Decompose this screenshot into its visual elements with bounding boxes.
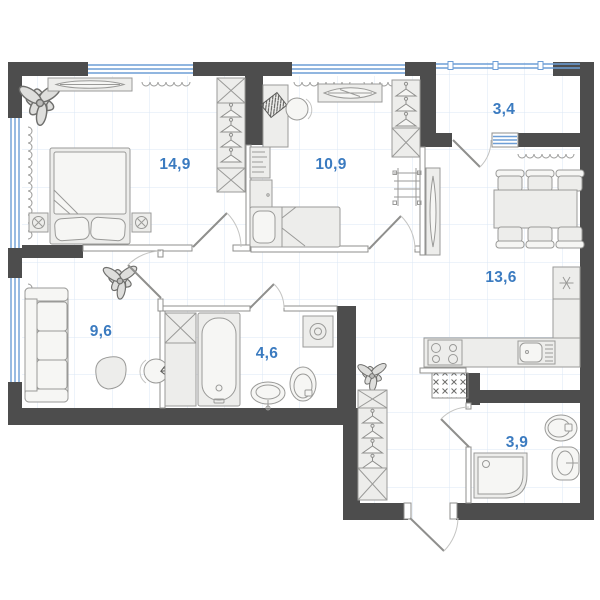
room-label-bedroom: 14,9: [159, 156, 190, 173]
kitchen-balcony-window: [492, 133, 518, 147]
floor-plan-drawing: 14,9: [0, 0, 600, 600]
washing-machine: [303, 316, 333, 347]
kids-cabinet: [250, 180, 272, 210]
decor-shelf: [318, 84, 382, 102]
dresser: [48, 78, 132, 91]
single-bed: [250, 207, 340, 247]
bath-cabinet: [165, 313, 196, 406]
bookshelf: [250, 147, 270, 178]
room-label-shower: 3,9: [506, 434, 529, 451]
room-label-kids: 10,9: [315, 156, 346, 173]
shower-tray: [474, 453, 527, 498]
nightstand-left: [29, 213, 48, 232]
room-label-living: 9,6: [90, 323, 113, 340]
window-bedroom-left: [8, 118, 22, 248]
sink-shower-room: [552, 447, 579, 480]
floor-plan-canvas: 14,9: [0, 0, 600, 600]
dining-chair: [496, 170, 584, 191]
apartment-floor: [8, 62, 594, 520]
double-bed: [50, 148, 130, 244]
window-kids-top: [292, 62, 405, 76]
office-chair-icon: [286, 98, 308, 120]
room-label-kitchen: 13,6: [485, 269, 516, 286]
window-bedroom-top: [88, 62, 193, 76]
room-label-bathroom: 4,6: [256, 345, 279, 362]
dining-table: [494, 190, 577, 228]
nightstand-right: [132, 213, 151, 232]
dining-chair-bottom: [496, 227, 584, 248]
pouf: [96, 357, 126, 389]
wardrobe-kids: [392, 80, 420, 157]
vent-box: [432, 373, 468, 398]
toilet-shower-room: [545, 415, 577, 441]
window-living-left: [8, 278, 22, 382]
sofa: [25, 288, 68, 402]
hall-wardrobe: [358, 390, 387, 500]
wardrobe-bedroom: [217, 78, 245, 192]
fridge: [553, 267, 580, 299]
toilet-bathroom: [290, 367, 316, 401]
room-balcony: 3,4: [493, 101, 516, 118]
room-label-balcony: 3,4: [493, 101, 516, 118]
mirror-cabinet: [426, 168, 440, 255]
bathtub: [198, 313, 240, 406]
